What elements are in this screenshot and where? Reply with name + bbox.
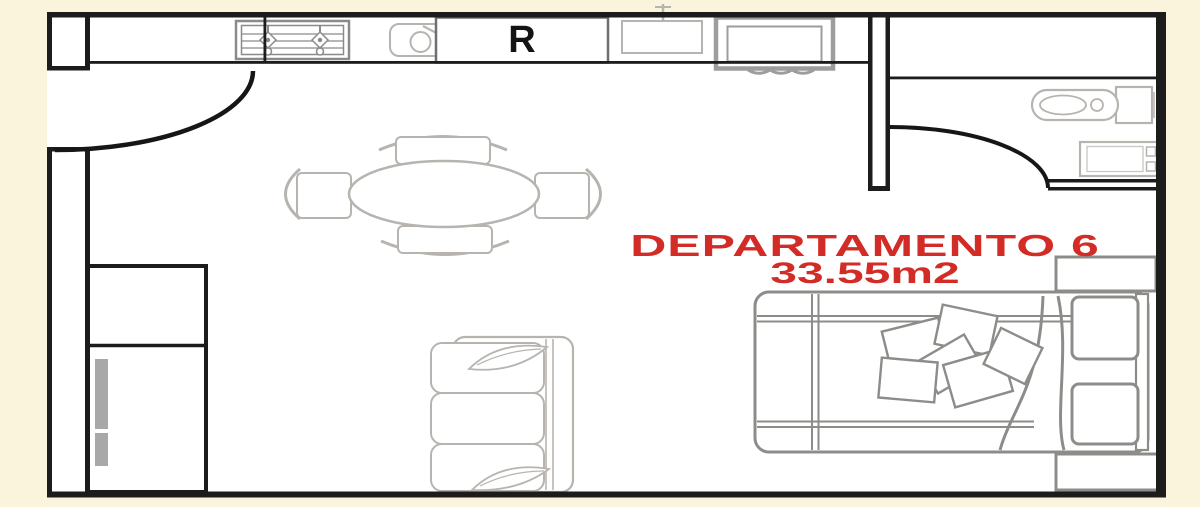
toilet-icon (1032, 87, 1154, 123)
toilet-bowl (1032, 90, 1118, 120)
toilet-tank (1116, 87, 1152, 123)
closet (88, 266, 206, 492)
wall-bottom (47, 492, 1166, 498)
area-label: 33.55m2 (665, 259, 1065, 289)
bed-pillow (1072, 297, 1138, 359)
chair-bottom-seat (398, 226, 492, 253)
bathroom-top-line (890, 77, 1156, 80)
stove-icon (236, 21, 349, 59)
wall-left-lower (47, 147, 52, 497)
dining-table (349, 161, 539, 227)
sofa (431, 337, 573, 492)
bathroom-sink-icon (1080, 142, 1157, 176)
wall-bathroom-divider (868, 12, 873, 190)
kitchen-sink-icon (622, 4, 702, 53)
nightstand-bottom (1056, 454, 1158, 490)
closet-door (95, 433, 108, 466)
refrigerator-label: R (436, 17, 608, 63)
sofa-cushion (431, 393, 544, 444)
bathroom-bottom-wall (1048, 179, 1156, 183)
chair-right-seat (535, 173, 589, 218)
throw-pillow (878, 358, 937, 403)
chair-left-seat (297, 173, 351, 218)
washing-machine-icon (716, 18, 833, 74)
closet-door (95, 359, 108, 429)
wall-left-upper (47, 12, 52, 70)
bed-pillow (1072, 384, 1138, 444)
floorplan: R DEPARTAMENTO 6 33.55m2 (0, 0, 1200, 507)
